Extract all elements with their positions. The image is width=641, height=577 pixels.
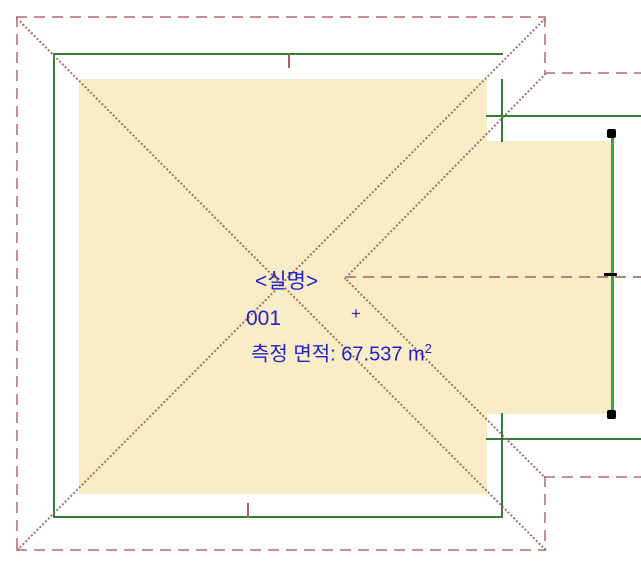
wall-left[interactable] [53, 53, 80, 518]
selection-handle-bottom[interactable] [607, 410, 616, 419]
zone-area-text: 측정 면적: 67.537 m [251, 344, 425, 366]
boundary-dash-right-upper-horizontal [544, 72, 641, 74]
zone-area-exponent: 2 [425, 341, 432, 356]
wall-junction-tick-bottom [247, 503, 249, 518]
selection-handle-top[interactable] [607, 129, 616, 138]
wall-extension-bottom[interactable] [486, 413, 641, 440]
zone-origin-marker[interactable]: + [351, 305, 361, 324]
wall-insulation-hatch-layer [486, 115, 641, 117]
floor-plan-canvas: <실명> 001 측정 면적: 67.537 m2 + [0, 0, 641, 577]
wall-insulation-hatch-layer [53, 53, 55, 518]
wall-top[interactable] [53, 53, 503, 80]
boundary-dash-right-lower-vertical [544, 476, 546, 551]
zone-number-label: 001 [246, 307, 281, 330]
wall-bottom[interactable] [53, 492, 503, 518]
boundary-dash-right-upper-vertical [544, 16, 546, 74]
wall-junction-tick-top [288, 54, 290, 68]
zone-name-label: <실명> [255, 270, 318, 293]
wall-extension-top[interactable] [486, 115, 641, 142]
boundary-dash-top [16, 16, 545, 18]
wall-insulation-hatch-layer [53, 53, 503, 55]
edge-midpoint-tick[interactable] [604, 273, 617, 276]
wall-insulation-hatch-layer [53, 516, 503, 518]
zone-area-label: 측정 면적: 67.537 m2 [251, 342, 432, 366]
boundary-dash-bottom [16, 549, 546, 551]
boundary-dash-right-lower-horizontal [544, 476, 641, 478]
zone-centerline-dash [345, 276, 641, 278]
boundary-dash-left [16, 16, 18, 551]
